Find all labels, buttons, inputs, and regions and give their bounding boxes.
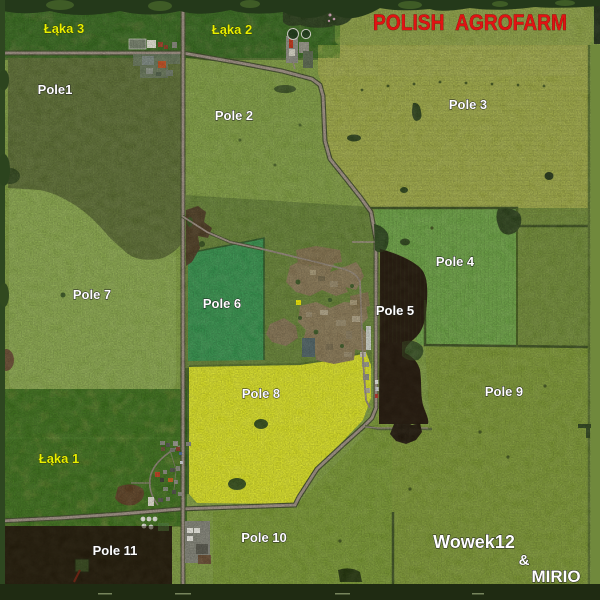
svg-text:Pole 5: Pole 5 bbox=[376, 303, 414, 318]
svg-text:Pole 10: Pole 10 bbox=[241, 530, 287, 545]
svg-text:Pole 8: Pole 8 bbox=[242, 386, 280, 401]
svg-text:&: & bbox=[519, 552, 530, 569]
svg-text:Pole 4: Pole 4 bbox=[436, 254, 475, 269]
svg-text:Pole 3: Pole 3 bbox=[449, 97, 487, 112]
svg-text:Pole 2: Pole 2 bbox=[215, 108, 253, 123]
svg-text:MIRIO: MIRIO bbox=[531, 567, 580, 586]
svg-text:Pole 6: Pole 6 bbox=[203, 296, 241, 311]
svg-text:POLISH AGROFARM: POLISH AGROFARM bbox=[373, 10, 567, 35]
svg-text:Łąka 3: Łąka 3 bbox=[44, 21, 84, 36]
svg-text:Łąka 1: Łąka 1 bbox=[39, 451, 79, 466]
svg-text:Łąka 2: Łąka 2 bbox=[212, 22, 252, 37]
svg-text:Wowek12: Wowek12 bbox=[433, 532, 515, 552]
svg-text:Pole 7: Pole 7 bbox=[73, 287, 111, 302]
svg-text:Pole 9: Pole 9 bbox=[485, 384, 523, 399]
svg-text:Pole 11: Pole 11 bbox=[93, 543, 138, 558]
svg-text:Pole1: Pole1 bbox=[38, 82, 73, 97]
